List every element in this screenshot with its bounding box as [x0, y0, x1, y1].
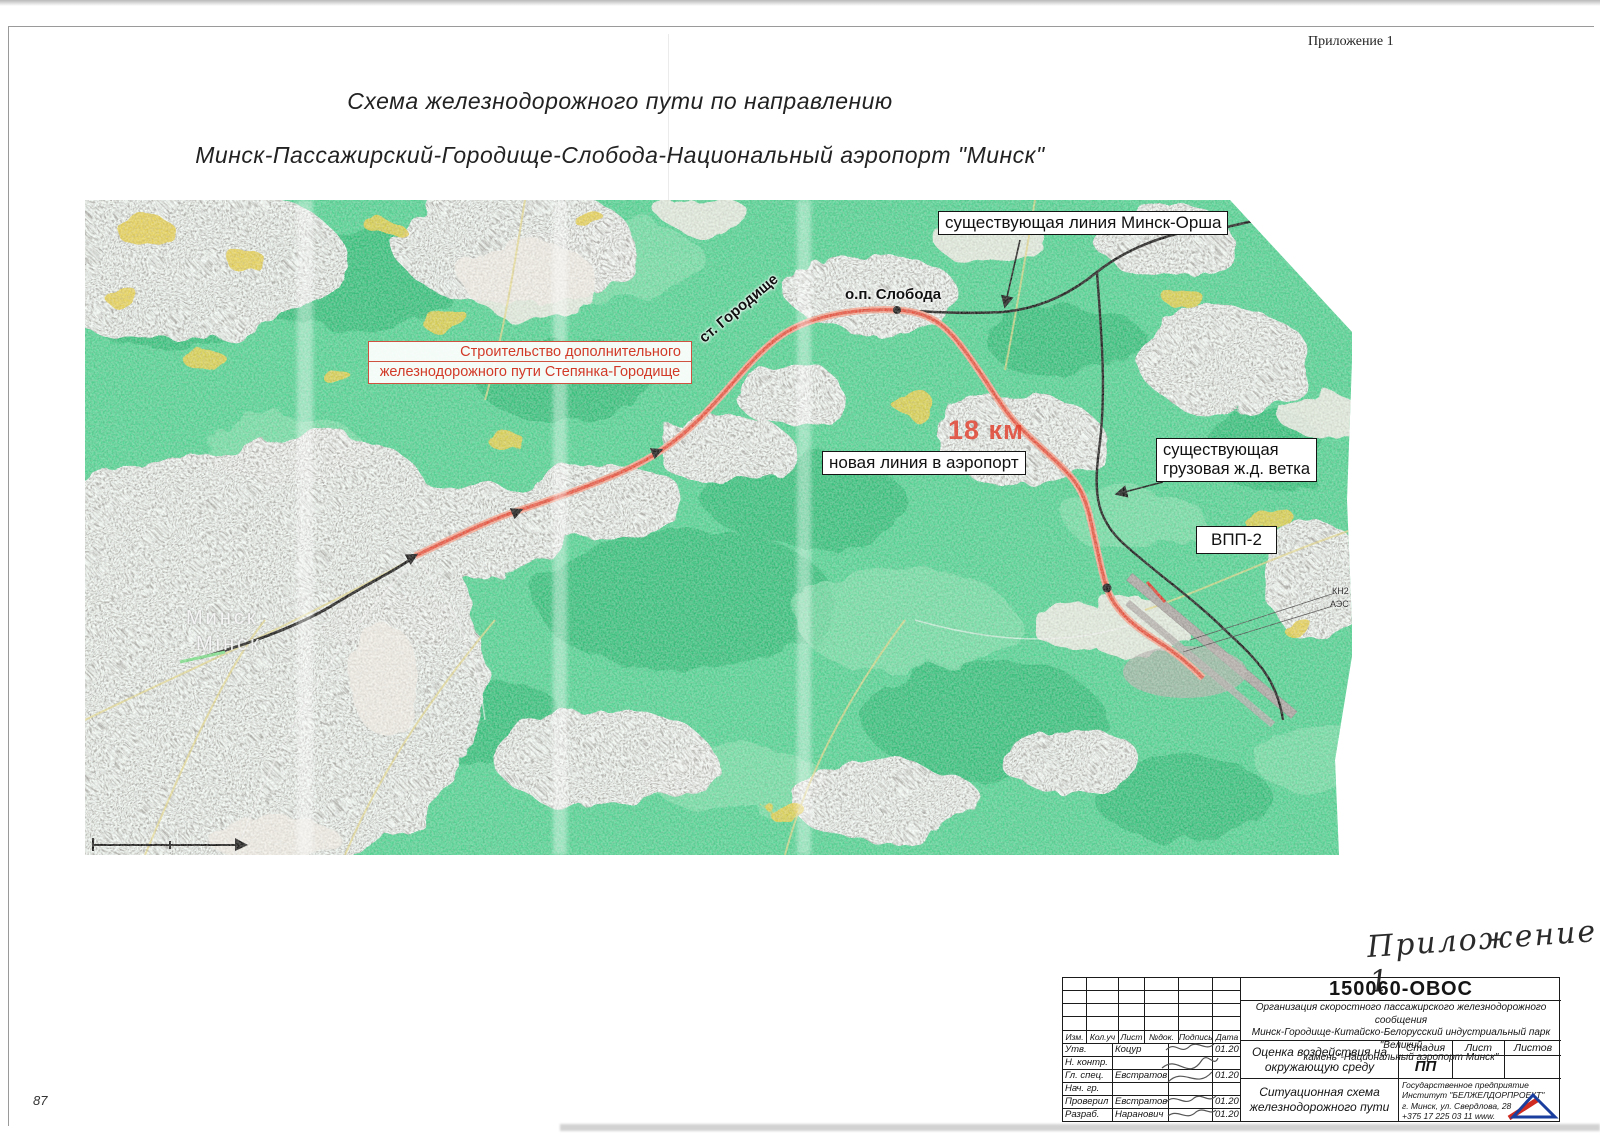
label-construction-note: Строительство дополнительного железнодор…: [368, 341, 692, 384]
scan-edge-bottom: [560, 1124, 1600, 1131]
scanned-sheet: Приложение 1 Схема железнодорожного пути…: [0, 0, 1600, 1134]
construction-note-line2: железнодорожного пути Степянка-Городище: [369, 362, 691, 383]
role-name: Наранович: [1113, 1109, 1169, 1121]
sheets-value: [1505, 1056, 1561, 1078]
construction-note-line1: Строительство дополнительного: [369, 342, 691, 362]
signature-cell: [1169, 1070, 1213, 1083]
rev-header-data: Дата: [1213, 1031, 1241, 1044]
sheet-title-line2: железнодорожного пути: [1241, 1100, 1398, 1115]
project-line1: Организация скоростного пассажирского же…: [1241, 1002, 1561, 1027]
role-row: Гл. спец. Евстратов 01.20: [1063, 1070, 1240, 1083]
label-runway-vpp2: ВПП-2: [1196, 526, 1277, 554]
freight-branch-line1: существующая: [1163, 441, 1310, 460]
role-label: Н. контр.: [1063, 1057, 1113, 1070]
title-block-left: Изм. Кол.уч Лист №док. Подпись Дата Утв.…: [1063, 978, 1241, 1121]
organization-cell: Государственное предприятие Институт "БЕ…: [1399, 1079, 1561, 1121]
sheet-title-line1: Ситуационная схема: [1241, 1085, 1398, 1100]
label-sloboda-stop: о.п. Слобода: [845, 286, 941, 303]
rev-header-podpis: Подпись: [1179, 1031, 1213, 1044]
stage-sheet-headers: Стадия Лист Листов: [1399, 1041, 1561, 1056]
label-kn2: КН2: [1332, 586, 1349, 596]
sheet-header: Лист: [1453, 1041, 1505, 1056]
role-row: Нач. гр.: [1063, 1083, 1240, 1096]
signature-cell: [1169, 1057, 1213, 1070]
freight-branch-line2: грузовая ж.д. ветка: [1163, 460, 1310, 479]
map-artwork: [85, 200, 1352, 855]
title-block: Изм. Кол.уч Лист №док. Подпись Дата Утв.…: [1062, 977, 1560, 1122]
organization-logo: [1505, 1090, 1559, 1120]
sheet-title: Ситуационная схема железнодорожного пути: [1241, 1079, 1399, 1121]
fold-stripe: [553, 200, 567, 855]
role-name: Евстратов: [1113, 1070, 1169, 1083]
signature-cell: [1169, 1109, 1213, 1121]
sheet-value: [1453, 1056, 1505, 1078]
label-minsk-ru: Минск: [186, 607, 259, 630]
rev-header-koluch: Кол.уч: [1087, 1031, 1119, 1044]
role-date: 01.20: [1213, 1044, 1241, 1057]
scan-edge-top: [0, 0, 1600, 6]
stamp-middle-band: Оценка воздействия на окружающую среду С…: [1241, 1041, 1561, 1079]
fold-line-artifact: [668, 34, 669, 202]
role-date: 01.20: [1213, 1070, 1241, 1083]
stage-value: ПП: [1399, 1056, 1453, 1078]
role-name: [1113, 1083, 1169, 1096]
role-name: Коцур: [1113, 1044, 1169, 1057]
signature-cell: [1169, 1044, 1213, 1057]
page-number: 87: [33, 1093, 47, 1108]
rev-header-list: Лист: [1119, 1031, 1145, 1044]
project-description: Организация скоростного пассажирского же…: [1241, 1001, 1561, 1041]
sheets-header: Листов: [1505, 1041, 1561, 1056]
role-date: [1213, 1057, 1241, 1070]
signature-cell: [1169, 1096, 1213, 1109]
page-frame-left: [8, 26, 9, 1126]
document-title-line1: Оценка воздействия на: [1241, 1045, 1398, 1060]
revision-header-row: Изм. Кол.уч Лист №док. Подпись Дата: [1063, 1031, 1240, 1044]
fold-stripe: [797, 200, 811, 855]
situation-map: существующая линия Минск-Орша о.п. Слобо…: [85, 200, 1352, 855]
role-label: Нач. гр.: [1063, 1083, 1113, 1096]
label-aes: АЭС: [1330, 599, 1349, 609]
label-existing-line-minsk-orsha: существующая линия Минск-Орша: [938, 211, 1228, 235]
title-block-right: 150060-ОВОС Организация скоростного пасс…: [1241, 978, 1561, 1121]
revision-grid: [1063, 978, 1240, 1031]
page-frame-top: [8, 26, 1594, 27]
role-label: Проверил: [1063, 1096, 1113, 1109]
label-new-line-airport: новая линия в аэропорт: [822, 451, 1026, 475]
document-number: 150060-ОВОС: [1241, 978, 1561, 1001]
role-label: Разраб.: [1063, 1109, 1113, 1121]
rev-header-izm: Изм.: [1063, 1031, 1087, 1044]
rev-header-ndok: №док.: [1145, 1031, 1179, 1044]
role-date: 01.20: [1213, 1109, 1241, 1121]
stage-sheet-values: ПП: [1399, 1056, 1561, 1078]
document-title: Оценка воздействия на окружающую среду: [1241, 1041, 1399, 1078]
label-minsk-be: Мінск: [196, 633, 262, 656]
role-name: [1113, 1057, 1169, 1070]
corner-note: Приложение 1: [1308, 34, 1394, 50]
role-label: Гл. спец.: [1063, 1070, 1113, 1083]
stamp-bottom-band: Ситуационная схема железнодорожного пути…: [1241, 1079, 1561, 1121]
role-date: [1213, 1083, 1241, 1096]
label-distance-18km: 18 км: [948, 415, 1024, 446]
role-name: Евстратов: [1113, 1096, 1169, 1109]
document-title-line2: окружающую среду: [1241, 1060, 1398, 1075]
role-label: Утв.: [1063, 1044, 1113, 1057]
role-row: Проверил Евстратов 01.20: [1063, 1096, 1240, 1109]
fold-stripe: [297, 200, 313, 855]
drawing-title-line2: Минск-Пассажирский-Городище-Слобода-Наци…: [130, 142, 1110, 169]
drawing-title-line1: Схема железнодорожного пути по направлен…: [180, 88, 1060, 115]
role-row: Утв. Коцур 01.20: [1063, 1044, 1240, 1057]
role-date: 01.20: [1213, 1096, 1241, 1109]
signature-cell: [1169, 1083, 1213, 1096]
stage-sheet-table: Стадия Лист Листов ПП: [1399, 1041, 1561, 1078]
label-freight-branch: существующая грузовая ж.д. ветка: [1156, 438, 1317, 482]
role-row: Разраб. Наранович 01.20: [1063, 1109, 1240, 1121]
stage-header: Стадия: [1399, 1041, 1453, 1056]
role-row: Н. контр.: [1063, 1057, 1240, 1070]
